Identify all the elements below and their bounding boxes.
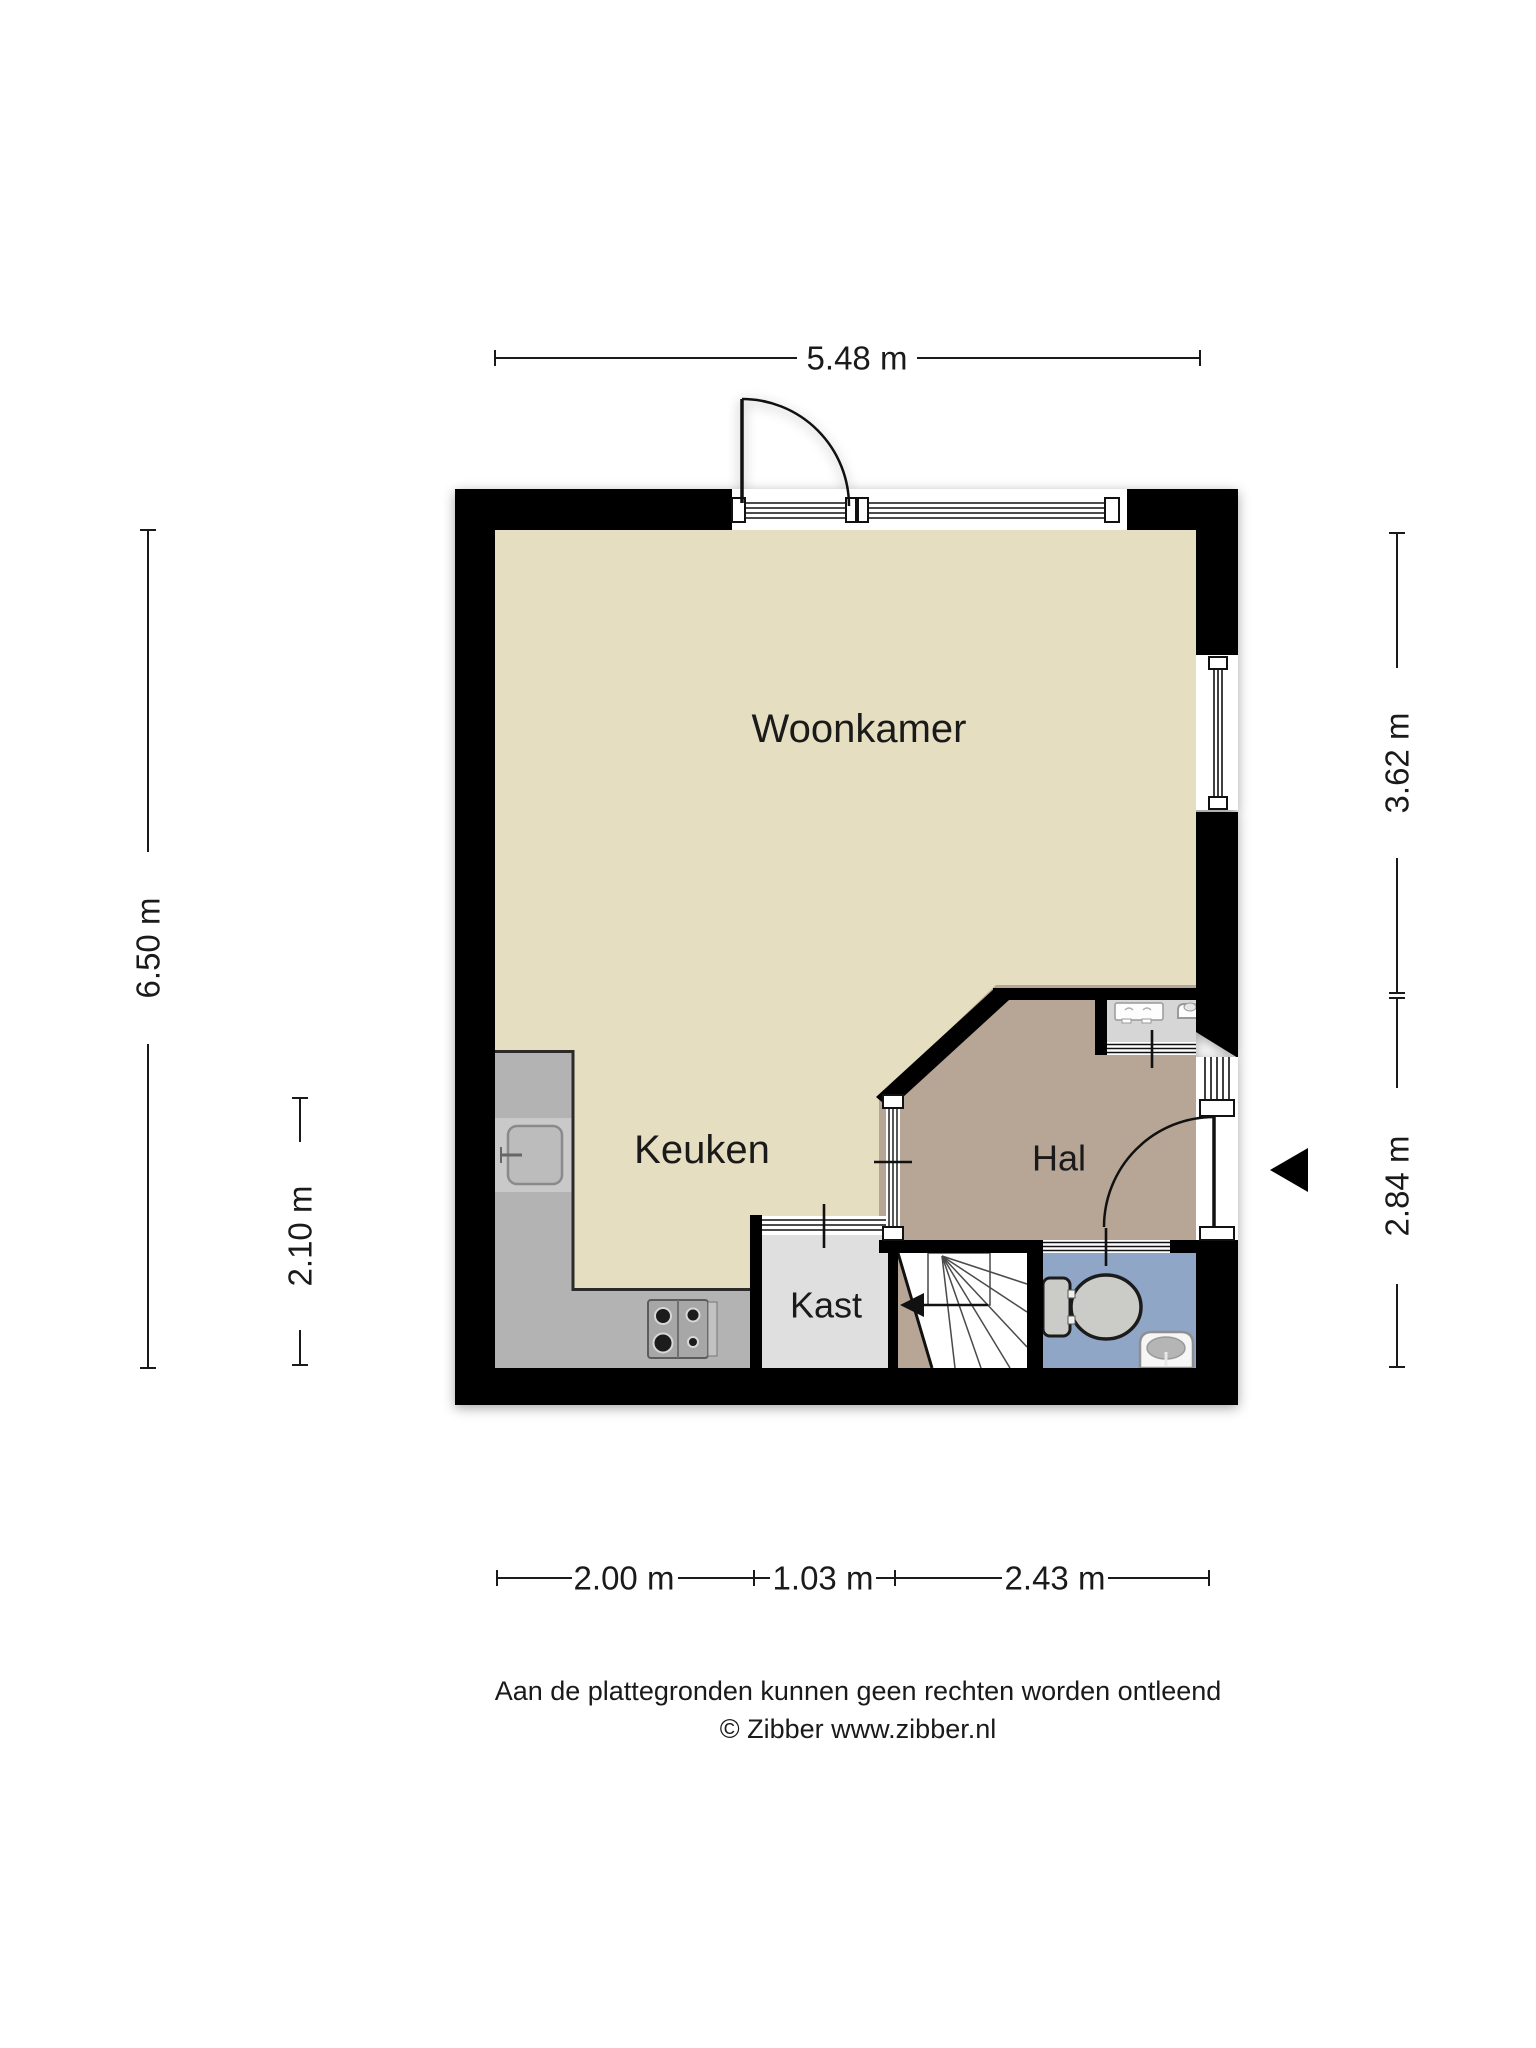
footer-disclaimer: Aan de plattegronden kunnen geen rechten… [495,1676,1222,1706]
wall-top-right [1127,489,1238,530]
wall-hal-stairs [879,1240,1043,1253]
wall-right-middle [1196,812,1238,1030]
nook-basin-icon [1178,1003,1199,1018]
entrance-arrow-icon [1270,1148,1308,1192]
wall-hal-top [993,988,1196,1000]
wall-left [455,489,495,1405]
frame-post [1105,498,1119,522]
dimension-bottom: 2.00 m 1.03 m 2.43 m [497,1560,1209,1597]
dimension-left-outer: 6.50 m [130,530,167,1368]
wall-toilet-stub [1170,1240,1196,1253]
frame-post [883,1095,903,1108]
wall-stairs-toilet [1027,1253,1043,1368]
dimension-top: 5.48 m [495,340,1200,377]
dim-right-lower-label: 2.84 m [1379,1136,1416,1237]
dimension-right-upper: 3.62 m [1379,533,1416,993]
toilet-icon [1043,1275,1141,1339]
wall-right-lower [1196,1240,1238,1368]
wall-nook-left [1095,988,1107,1055]
utility-fixture-icon [1115,1003,1163,1023]
dim-right-upper-label: 3.62 m [1379,713,1416,814]
frame-post [846,498,856,522]
frame-post [858,498,868,522]
kast-label: Kast [790,1285,862,1326]
window-cap [1209,657,1227,669]
hob-icon [648,1300,717,1358]
wall-kast-left [750,1215,762,1368]
wall-top-left [455,489,732,530]
building: Woonkamer Keuken Hal Kast [455,399,1238,1405]
wall-entrance-wedge [1196,1012,1238,1058]
floorplan-page: Woonkamer Keuken Hal Kast 5.48 m 6.50 m … [0,0,1536,2048]
woonkamer-label: Woonkamer [752,707,967,751]
top-opening-band [732,489,1127,530]
frame-post [1200,1227,1234,1240]
front-top-glazing [732,489,1127,530]
hal-label: Hal [1032,1138,1086,1179]
window-cap [1209,797,1227,809]
dim-bottom-left-label: 2.00 m [574,1560,675,1597]
dimension-right-lower: 2.84 m [1379,998,1416,1367]
right-window [1196,655,1238,810]
hand-basin-icon [1140,1332,1193,1368]
frame-post [1200,1100,1234,1116]
frame-post [883,1227,903,1240]
dim-top-label: 5.48 m [807,340,908,377]
footer-credit: © Zibber www.zibber.nl [720,1714,997,1744]
dim-left-inner-label: 2.10 m [282,1186,319,1287]
keuken-label: Keuken [634,1128,770,1172]
dimension-left-inner: 2.10 m [282,1098,319,1365]
dim-bottom-right-label: 2.43 m [1005,1560,1106,1597]
window-band [1196,655,1238,810]
dim-left-outer-label: 6.50 m [130,898,167,999]
wall-bottom [455,1368,1238,1405]
dim-bottom-middle-label: 1.03 m [773,1560,874,1597]
floorplan-svg: Woonkamer Keuken Hal Kast 5.48 m 6.50 m … [0,0,1536,2048]
wall-right-upper [1196,529,1238,655]
